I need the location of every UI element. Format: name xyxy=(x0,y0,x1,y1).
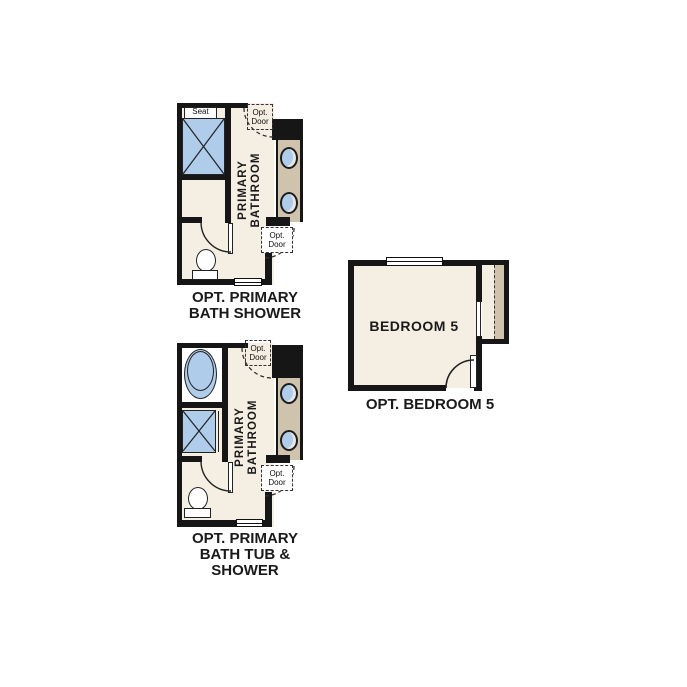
closet-wall xyxy=(504,260,509,344)
room-label-bedroom5: BEDROOM 5 xyxy=(350,318,478,334)
opt-door-text: Door xyxy=(268,240,285,249)
room-label-primary-bathroom: PRIMARY BATHROOM xyxy=(232,382,262,492)
caption-line: BATH TUB & xyxy=(166,547,324,563)
caption-bedroom5: OPT. BEDROOM 5 xyxy=(346,397,514,413)
opt-door-label: Opt. Door xyxy=(247,104,273,130)
caption-line: BATH SHOWER xyxy=(166,306,324,322)
wall-segment xyxy=(265,492,272,527)
sink xyxy=(280,192,298,214)
shower-stall xyxy=(182,118,225,175)
opt-door-label: Opt. Door xyxy=(245,340,271,366)
shower-stall xyxy=(182,410,216,453)
opt-door-text: Opt. xyxy=(269,231,284,240)
closet-floor xyxy=(482,265,494,339)
wall-segment xyxy=(177,456,202,462)
wall-segment xyxy=(177,402,228,408)
wall-block xyxy=(272,119,303,140)
caption-bath-tub-shower: OPT. PRIMARY BATH TUB & SHOWER xyxy=(166,531,324,579)
floor-plan-canvas: Seat xyxy=(0,0,687,687)
shower-seat-label: Seat xyxy=(184,107,217,119)
opt-door-label: Opt. Door xyxy=(261,465,293,491)
caption-line: OPT. PRIMARY xyxy=(166,290,324,306)
wall-segment xyxy=(265,252,272,285)
room-label-line: PRIMARY xyxy=(237,160,250,220)
wall-segment xyxy=(177,217,202,223)
wall-segment xyxy=(225,103,231,223)
window-line xyxy=(387,261,442,262)
room-label-line: PRIMARY xyxy=(234,407,247,467)
room-label-primary-bathroom: PRIMARY BATHROOM xyxy=(235,135,265,245)
caption-line: SHOWER xyxy=(166,563,324,579)
wall-segment xyxy=(177,175,230,180)
opt-door-text: Door xyxy=(249,353,266,362)
sink xyxy=(280,430,298,451)
window-line xyxy=(235,282,261,283)
window-marker xyxy=(234,278,262,286)
toilet-tank xyxy=(192,270,218,280)
wall-segment xyxy=(266,217,290,226)
bathtub-rim xyxy=(187,351,214,391)
window-line xyxy=(237,523,262,524)
opt-door-text: Opt. xyxy=(250,344,265,353)
toilet-tank xyxy=(184,508,211,518)
toilet xyxy=(188,487,208,510)
closet-wall xyxy=(482,339,509,344)
opt-door-text: Opt. xyxy=(269,469,284,478)
door-leaf xyxy=(470,355,477,388)
opt-door-label: Opt. Door xyxy=(261,227,293,253)
seat-text: Seat xyxy=(192,107,208,116)
shower-glass-line xyxy=(218,411,219,452)
wall-segment xyxy=(476,260,482,302)
wall-segment xyxy=(266,455,290,463)
opt-door-text: Door xyxy=(268,478,285,487)
room-label-line: BATHROOM xyxy=(247,400,260,475)
opt-door-text: Opt. xyxy=(252,108,267,117)
wall-segment xyxy=(348,385,446,391)
door-leaf xyxy=(228,223,233,254)
closet-shelf xyxy=(494,265,504,339)
caption-bath-shower: OPT. PRIMARY BATH SHOWER xyxy=(166,290,324,322)
sink xyxy=(280,383,298,404)
opt-door-text: Door xyxy=(251,117,268,126)
window-marker xyxy=(386,257,443,266)
sink xyxy=(280,147,298,169)
plan-lines xyxy=(0,0,687,687)
room-label-line: BATHROOM xyxy=(250,153,263,228)
wall-block xyxy=(272,345,303,378)
caption-line: OPT. PRIMARY xyxy=(166,531,324,547)
toilet xyxy=(196,249,216,272)
window-marker xyxy=(236,519,263,527)
